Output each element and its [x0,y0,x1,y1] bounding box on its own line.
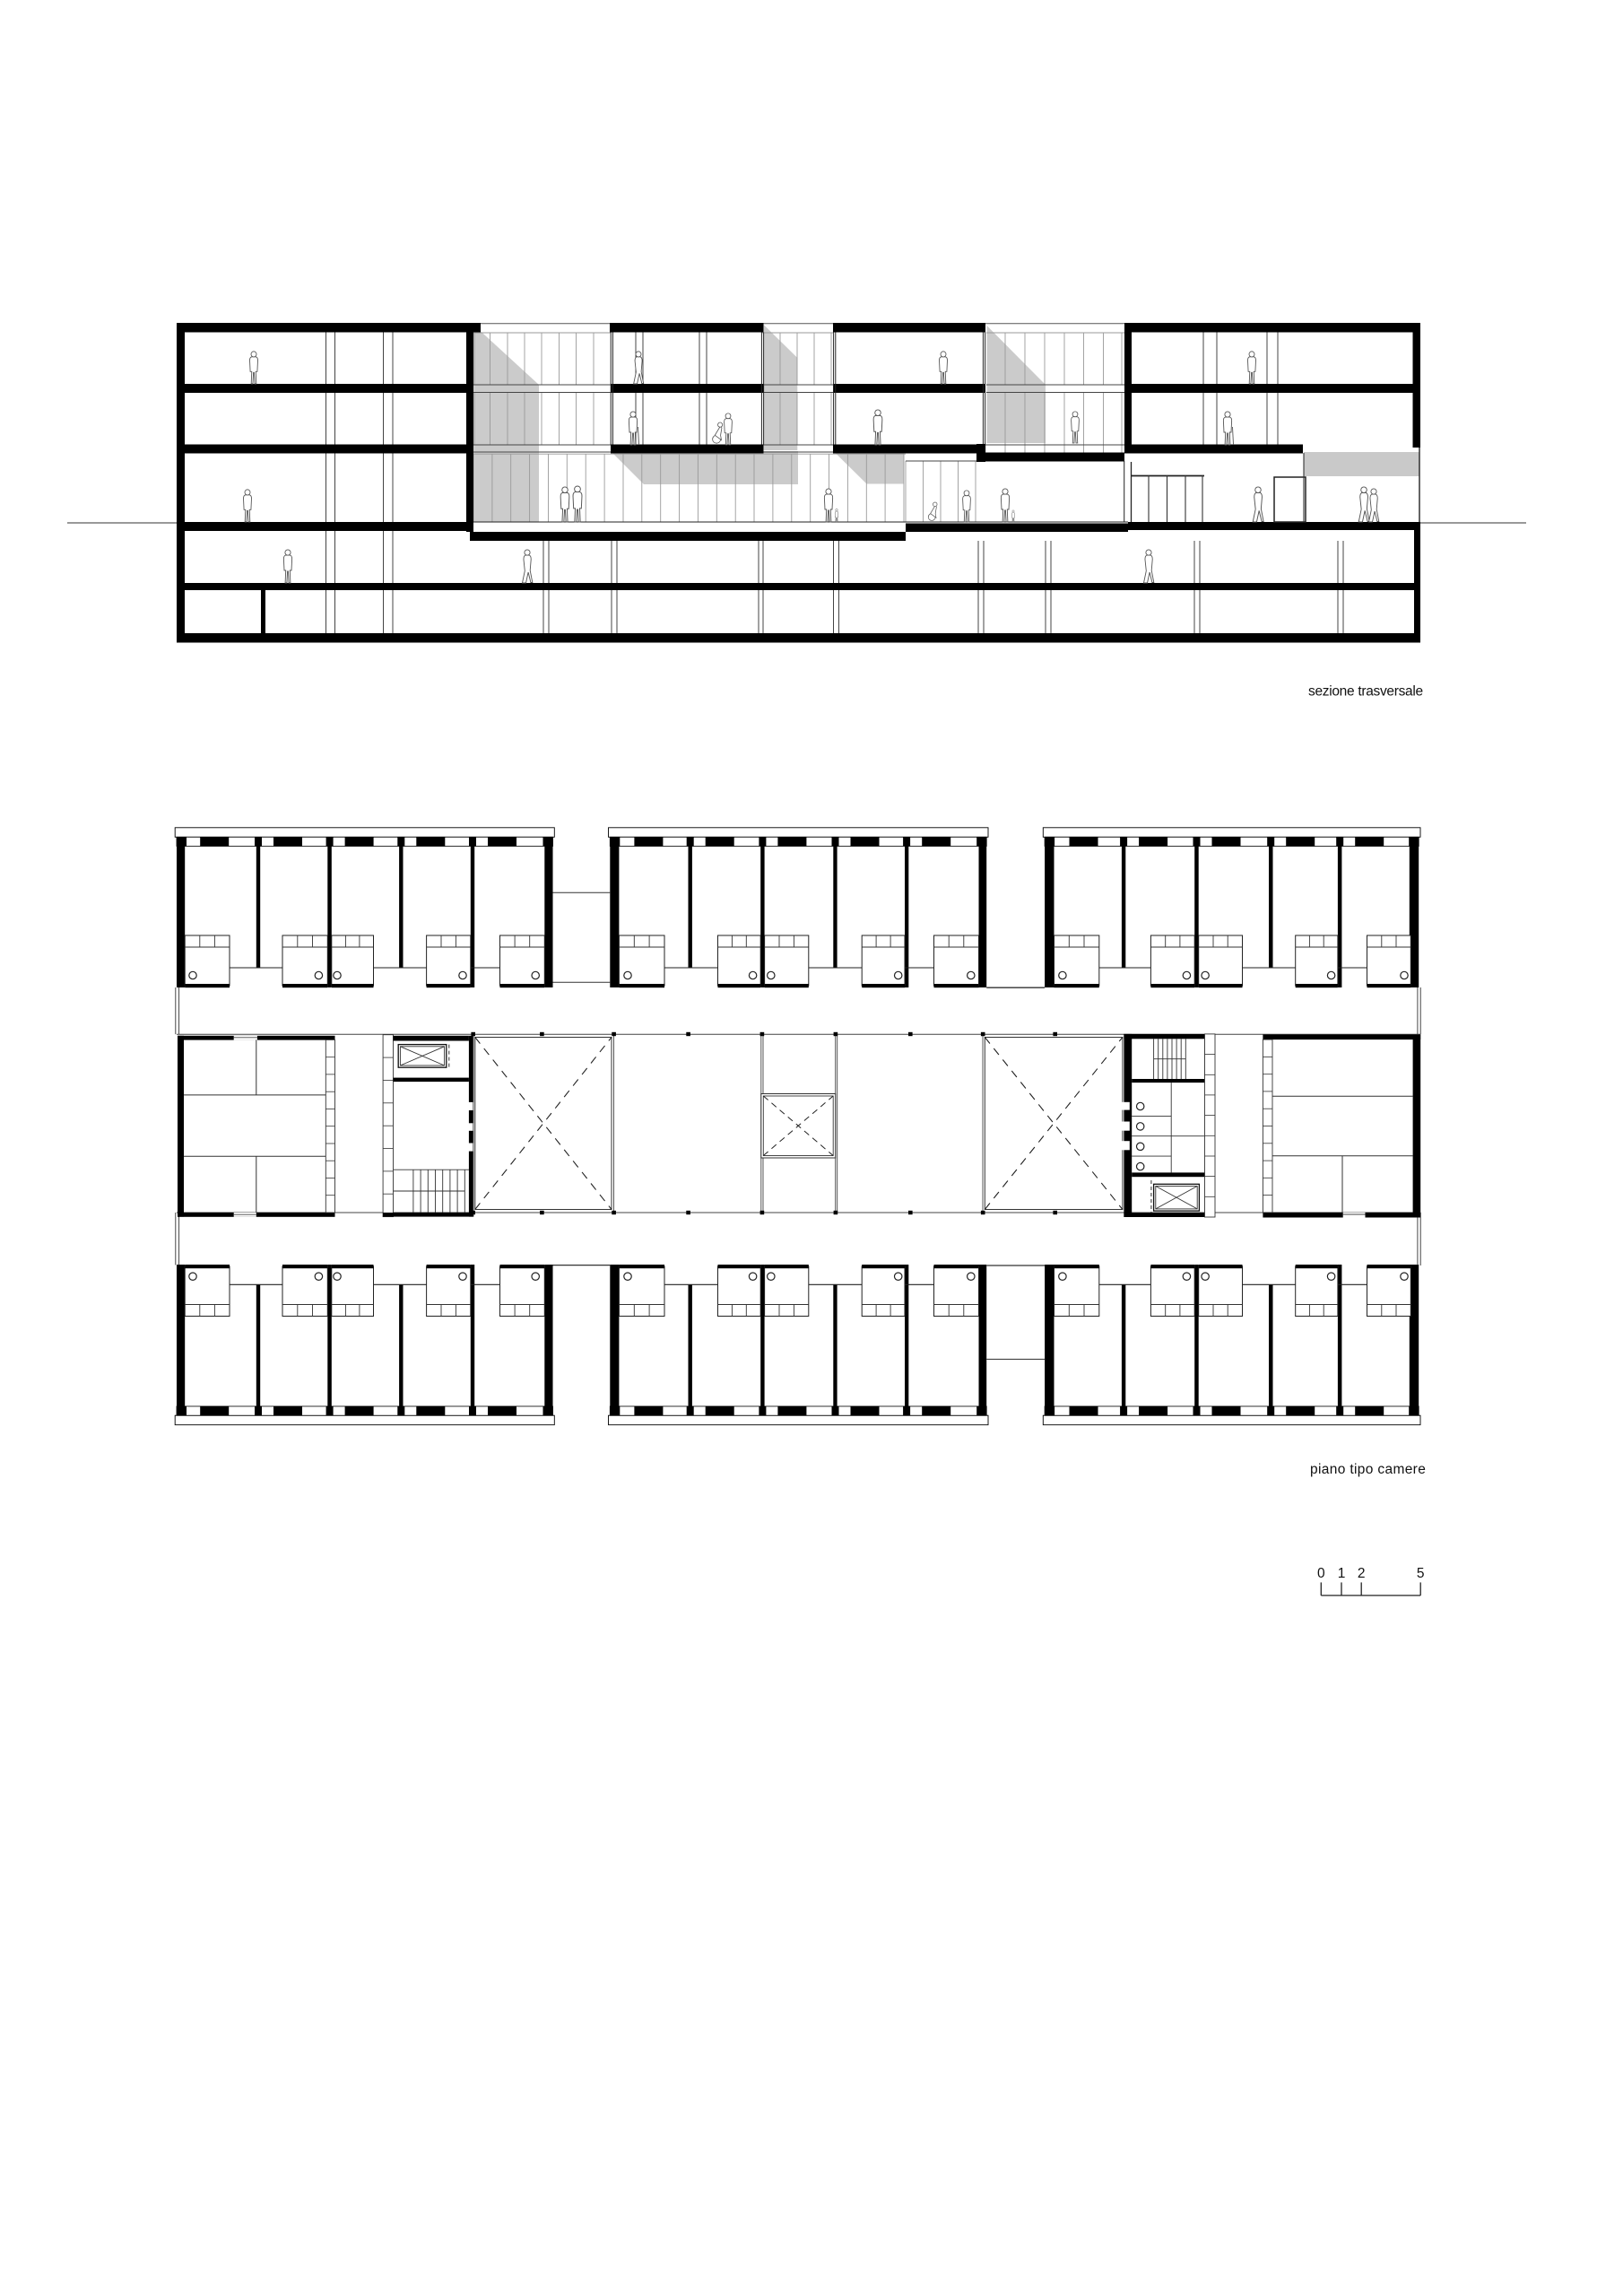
svg-text:1: 1 [1338,1566,1346,1581]
svg-text:piano tipo camere: piano tipo camere [1310,1462,1426,1477]
svg-text:5: 5 [1417,1566,1425,1581]
svg-text:sezione trasversale: sezione trasversale [1308,684,1423,700]
svg-text:2: 2 [1358,1566,1366,1581]
svg-text:0: 0 [1317,1566,1325,1581]
